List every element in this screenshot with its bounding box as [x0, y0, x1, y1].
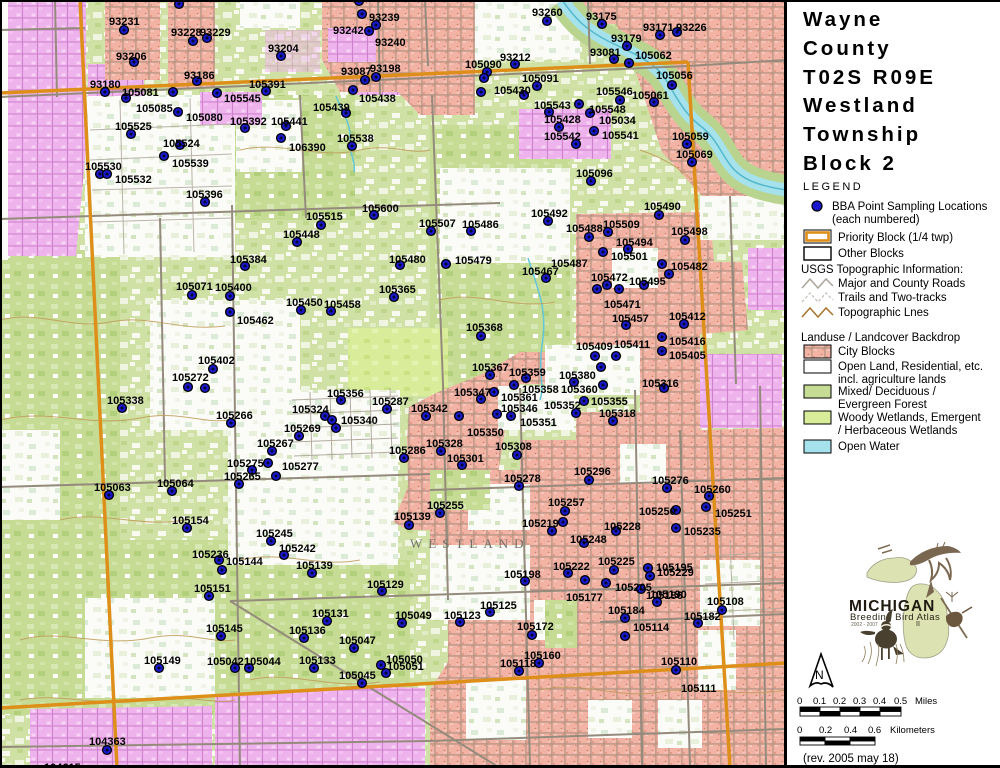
svg-text:105328: 105328: [426, 438, 463, 450]
svg-text:93260: 93260: [532, 7, 563, 19]
svg-text:105125: 105125: [480, 600, 517, 612]
svg-text:County: County: [803, 37, 892, 60]
svg-text:105062: 105062: [635, 50, 672, 62]
svg-text:105222: 105222: [553, 561, 590, 573]
svg-text:105242: 105242: [279, 543, 316, 555]
svg-text:Topographic Lnes: Topographic Lnes: [838, 307, 929, 319]
svg-text:105338: 105338: [107, 395, 144, 407]
svg-text:105458: 105458: [324, 299, 361, 311]
svg-text:105515: 105515: [306, 211, 343, 223]
svg-text:105412: 105412: [669, 311, 706, 323]
svg-text:BBA Point Sampling Locations: BBA Point Sampling Locations: [832, 201, 988, 213]
svg-text:105467: 105467: [522, 266, 559, 278]
svg-text:II: II: [916, 621, 920, 628]
svg-text:93186: 93186: [184, 70, 215, 82]
svg-text:2002 - 2007: 2002 - 2007: [851, 622, 878, 628]
svg-text:105360: 105360: [561, 384, 598, 396]
svg-text:105450: 105450: [286, 297, 323, 309]
svg-text:105462: 105462: [237, 315, 274, 327]
svg-text:105365: 105365: [379, 284, 416, 296]
svg-text:105177: 105177: [566, 592, 603, 604]
svg-text:105186: 105186: [646, 590, 683, 602]
svg-text:105219: 105219: [522, 518, 559, 530]
svg-text:105235: 105235: [684, 526, 721, 538]
svg-text:105278: 105278: [504, 473, 541, 485]
svg-text:105350: 105350: [467, 427, 504, 439]
svg-text:105391: 105391: [249, 79, 286, 91]
svg-text:105545: 105545: [224, 93, 261, 105]
svg-text:105367: 105367: [472, 362, 509, 374]
svg-text:105438: 105438: [359, 93, 396, 105]
svg-text:105384: 105384: [230, 254, 268, 266]
svg-text:0.2: 0.2: [819, 725, 832, 736]
svg-text:105380: 105380: [559, 370, 596, 382]
svg-text:105045: 105045: [339, 670, 376, 682]
svg-text:N: N: [815, 668, 824, 682]
svg-text:0: 0: [797, 696, 802, 707]
svg-text:105257: 105257: [548, 497, 585, 509]
svg-text:105085: 105085: [136, 103, 173, 115]
svg-text:93087: 93087: [341, 66, 372, 78]
svg-text:105080: 105080: [186, 112, 223, 124]
svg-text:105479: 105479: [455, 255, 492, 267]
svg-text:105269: 105269: [284, 423, 321, 435]
svg-text:105286: 105286: [389, 445, 426, 457]
svg-text:Landuse / Landcover Backdrop: Landuse / Landcover Backdrop: [801, 332, 960, 344]
svg-text:105108: 105108: [707, 596, 744, 608]
svg-text:105359: 105359: [509, 367, 546, 379]
svg-text:105409: 105409: [576, 341, 613, 353]
svg-text:105482: 105482: [671, 261, 708, 273]
svg-text:Township: Township: [803, 123, 921, 146]
svg-text:105301: 105301: [447, 453, 484, 465]
svg-text:105324: 105324: [292, 404, 330, 416]
svg-text:105368: 105368: [466, 322, 503, 334]
svg-text:105091: 105091: [522, 73, 559, 85]
svg-text:105236: 105236: [192, 549, 229, 561]
svg-text:93206: 93206: [116, 51, 147, 63]
svg-text:0.6: 0.6: [868, 725, 881, 736]
svg-text:Mixed/ Deciduous /: Mixed/ Deciduous /: [838, 386, 937, 398]
svg-text:105525: 105525: [115, 121, 152, 133]
svg-text:93198: 93198: [370, 63, 401, 75]
svg-text:105064: 105064: [157, 478, 195, 490]
svg-text:104363: 104363: [89, 736, 126, 748]
svg-text:105405: 105405: [669, 350, 706, 362]
svg-text:105061: 105061: [632, 90, 669, 102]
svg-text:105480: 105480: [389, 254, 426, 266]
svg-text:105539: 105539: [172, 158, 209, 170]
svg-text:0.2: 0.2: [833, 696, 846, 707]
svg-text:Other Blocks: Other Blocks: [838, 248, 904, 260]
svg-text:105063: 105063: [94, 482, 131, 494]
svg-text:105245: 105245: [256, 528, 293, 540]
svg-text:105049: 105049: [395, 610, 432, 622]
svg-text:105267: 105267: [257, 438, 294, 450]
svg-text:105441: 105441: [271, 116, 308, 128]
svg-text:105490: 105490: [644, 201, 681, 213]
svg-text:105069: 105069: [676, 149, 713, 161]
svg-text:City Blocks: City Blocks: [838, 346, 895, 358]
svg-text:93231: 93231: [109, 16, 140, 28]
svg-text:105071: 105071: [176, 281, 213, 293]
svg-text:Miles: Miles: [915, 696, 937, 707]
svg-text:105154: 105154: [172, 515, 210, 527]
svg-text:105524: 105524: [163, 138, 201, 150]
svg-text:105471: 105471: [604, 299, 641, 311]
svg-text:105494: 105494: [616, 237, 654, 249]
svg-text:105507: 105507: [419, 218, 456, 230]
svg-text:105355: 105355: [591, 396, 628, 408]
svg-text:105182: 105182: [684, 611, 721, 623]
svg-text:105400: 105400: [215, 282, 252, 294]
svg-text:105346: 105346: [501, 403, 538, 415]
svg-text:105501: 105501: [611, 251, 648, 263]
svg-text:105145: 105145: [206, 623, 243, 635]
svg-text:93226: 93226: [676, 22, 707, 34]
svg-text:105044: 105044: [244, 656, 282, 668]
svg-text:USGS Topographic Information:: USGS Topographic Information:: [801, 264, 963, 276]
svg-text:105225: 105225: [598, 556, 635, 568]
svg-text:93180: 93180: [90, 79, 121, 91]
svg-text:0.4: 0.4: [873, 696, 886, 707]
svg-text:105600: 105600: [362, 203, 399, 215]
svg-text:0: 0: [797, 725, 802, 736]
svg-text:105352: 105352: [544, 400, 581, 412]
svg-text:105172: 105172: [517, 621, 554, 633]
svg-text:105228: 105228: [604, 521, 641, 533]
svg-text:105081: 105081: [122, 87, 159, 99]
svg-text:93228: 93228: [171, 27, 202, 39]
svg-text:105059: 105059: [672, 131, 709, 143]
svg-text:0.3: 0.3: [853, 696, 866, 707]
svg-text:105118: 105118: [500, 658, 536, 670]
svg-text:Block 2: Block 2: [803, 152, 897, 175]
svg-text:105472: 105472: [591, 272, 628, 284]
svg-text:93171: 93171: [643, 22, 674, 34]
svg-text:LEGEND: LEGEND: [803, 181, 863, 193]
svg-text:105090: 105090: [465, 59, 502, 71]
svg-text:T02S R09E: T02S R09E: [803, 66, 936, 89]
svg-text:105144: 105144: [226, 556, 264, 568]
svg-text:93179: 93179: [611, 33, 642, 45]
svg-text:105509: 105509: [603, 219, 640, 231]
svg-text:105111: 105111: [681, 683, 717, 695]
svg-text:105356: 105356: [327, 388, 364, 400]
svg-text:105486: 105486: [462, 219, 499, 231]
svg-text:105488: 105488: [566, 223, 603, 235]
svg-text:(each numbered): (each numbered): [832, 214, 920, 226]
svg-text:93240: 93240: [375, 37, 406, 49]
svg-text:105266: 105266: [216, 410, 253, 422]
svg-text:105308: 105308: [495, 441, 532, 453]
svg-text:105316: 105316: [642, 378, 679, 390]
svg-text:105272: 105272: [172, 372, 209, 384]
svg-text:105541: 105541: [602, 130, 639, 142]
svg-text:105151: 105151: [194, 583, 231, 595]
svg-text:105133: 105133: [299, 655, 336, 667]
svg-text:105265: 105265: [224, 471, 261, 483]
svg-text:105042: 105042: [207, 656, 244, 668]
svg-text:WESTLAND: WESTLAND: [410, 536, 530, 551]
svg-text:105396: 105396: [186, 189, 223, 201]
svg-text:105051: 105051: [387, 661, 424, 673]
svg-text:93081: 93081: [590, 47, 621, 59]
svg-text:105096: 105096: [576, 168, 613, 180]
svg-text:105136: 105136: [289, 625, 326, 637]
svg-text:incl. agriculture lands: incl. agriculture lands: [838, 374, 946, 386]
svg-text:Wayne: Wayne: [803, 8, 883, 31]
svg-text:0.1: 0.1: [813, 696, 826, 707]
svg-text:105428: 105428: [544, 114, 581, 126]
svg-text:0.5: 0.5: [894, 696, 907, 707]
svg-text:105198: 105198: [504, 569, 541, 581]
svg-text:Major and County Roads: Major and County Roads: [838, 278, 965, 290]
svg-text:Open Water: Open Water: [838, 441, 900, 453]
svg-text:105123: 105123: [444, 610, 481, 622]
svg-text:Woody Wetlands, Emergent: Woody Wetlands, Emergent: [838, 412, 982, 424]
svg-text:105546: 105546: [596, 86, 633, 98]
svg-text:105342: 105342: [411, 403, 448, 415]
svg-text:105318: 105318: [599, 408, 636, 420]
svg-text:Open Land, Residential, etc.: Open Land, Residential, etc.: [838, 361, 983, 373]
svg-text:105250: 105250: [639, 506, 676, 518]
svg-text:105114: 105114: [633, 622, 670, 634]
svg-text:105542: 105542: [544, 131, 581, 143]
svg-text:105251: 105251: [715, 508, 752, 520]
svg-text:105149: 105149: [144, 655, 181, 667]
svg-text:105277: 105277: [282, 461, 319, 473]
svg-text:105047: 105047: [339, 635, 376, 647]
svg-text:105131: 105131: [312, 608, 349, 620]
svg-text:Kilometers: Kilometers: [890, 725, 935, 736]
svg-text:105287: 105287: [372, 396, 409, 408]
svg-text:105229: 105229: [657, 567, 694, 579]
svg-text:105340: 105340: [341, 415, 378, 427]
svg-text:105543: 105543: [534, 100, 571, 112]
svg-text:105416: 105416: [669, 336, 706, 348]
svg-text:Westland: Westland: [803, 94, 918, 117]
svg-text:105139: 105139: [296, 560, 333, 572]
svg-text:93242: 93242: [333, 25, 364, 37]
svg-text:/ Herbaceous Wetlands: / Herbaceous Wetlands: [838, 425, 958, 437]
svg-text:105430: 105430: [494, 85, 531, 97]
svg-text:93239: 93239: [369, 12, 400, 24]
svg-text:105411: 105411: [614, 339, 650, 351]
svg-text:105448: 105448: [283, 229, 320, 241]
svg-text:105402: 105402: [198, 355, 235, 367]
svg-text:105184: 105184: [608, 605, 646, 617]
svg-text:93229: 93229: [200, 27, 231, 39]
svg-text:105275: 105275: [227, 458, 264, 470]
svg-text:(rev. 2005 may 18): (rev. 2005 may 18): [803, 753, 899, 765]
svg-text:105255: 105255: [427, 500, 464, 512]
svg-text:105530: 105530: [85, 161, 122, 173]
svg-text:105492: 105492: [531, 208, 568, 220]
svg-text:106390: 106390: [289, 142, 326, 154]
svg-text:0.4: 0.4: [844, 725, 857, 736]
svg-text:105532: 105532: [115, 174, 152, 186]
svg-text:105347: 105347: [454, 387, 491, 399]
svg-text:105439: 105439: [313, 102, 350, 114]
svg-text:105276: 105276: [652, 475, 689, 487]
svg-text:Trails and Two-tracks: Trails and Two-tracks: [838, 292, 947, 304]
svg-text:105538: 105538: [337, 133, 374, 145]
svg-text:105248: 105248: [570, 534, 607, 546]
svg-text:105351: 105351: [520, 417, 557, 429]
svg-text:105129: 105129: [367, 579, 404, 591]
svg-text:93204: 93204: [268, 43, 299, 55]
svg-text:105139: 105139: [394, 511, 431, 523]
svg-text:105056: 105056: [656, 70, 693, 82]
svg-text:Priority Block (1/4 twp): Priority Block (1/4 twp): [838, 232, 953, 244]
svg-text:105457: 105457: [612, 313, 649, 325]
svg-text:93175: 93175: [586, 11, 617, 23]
svg-text:105495: 105495: [629, 276, 666, 288]
svg-text:105392: 105392: [230, 116, 267, 128]
svg-text:105296: 105296: [574, 466, 611, 478]
svg-text:105498: 105498: [671, 226, 708, 238]
svg-text:93212: 93212: [500, 52, 531, 64]
svg-text:105260: 105260: [694, 484, 731, 496]
svg-text:Evergreen Forest: Evergreen Forest: [838, 399, 928, 411]
svg-text:105034: 105034: [599, 115, 637, 127]
svg-text:105110: 105110: [661, 656, 697, 668]
